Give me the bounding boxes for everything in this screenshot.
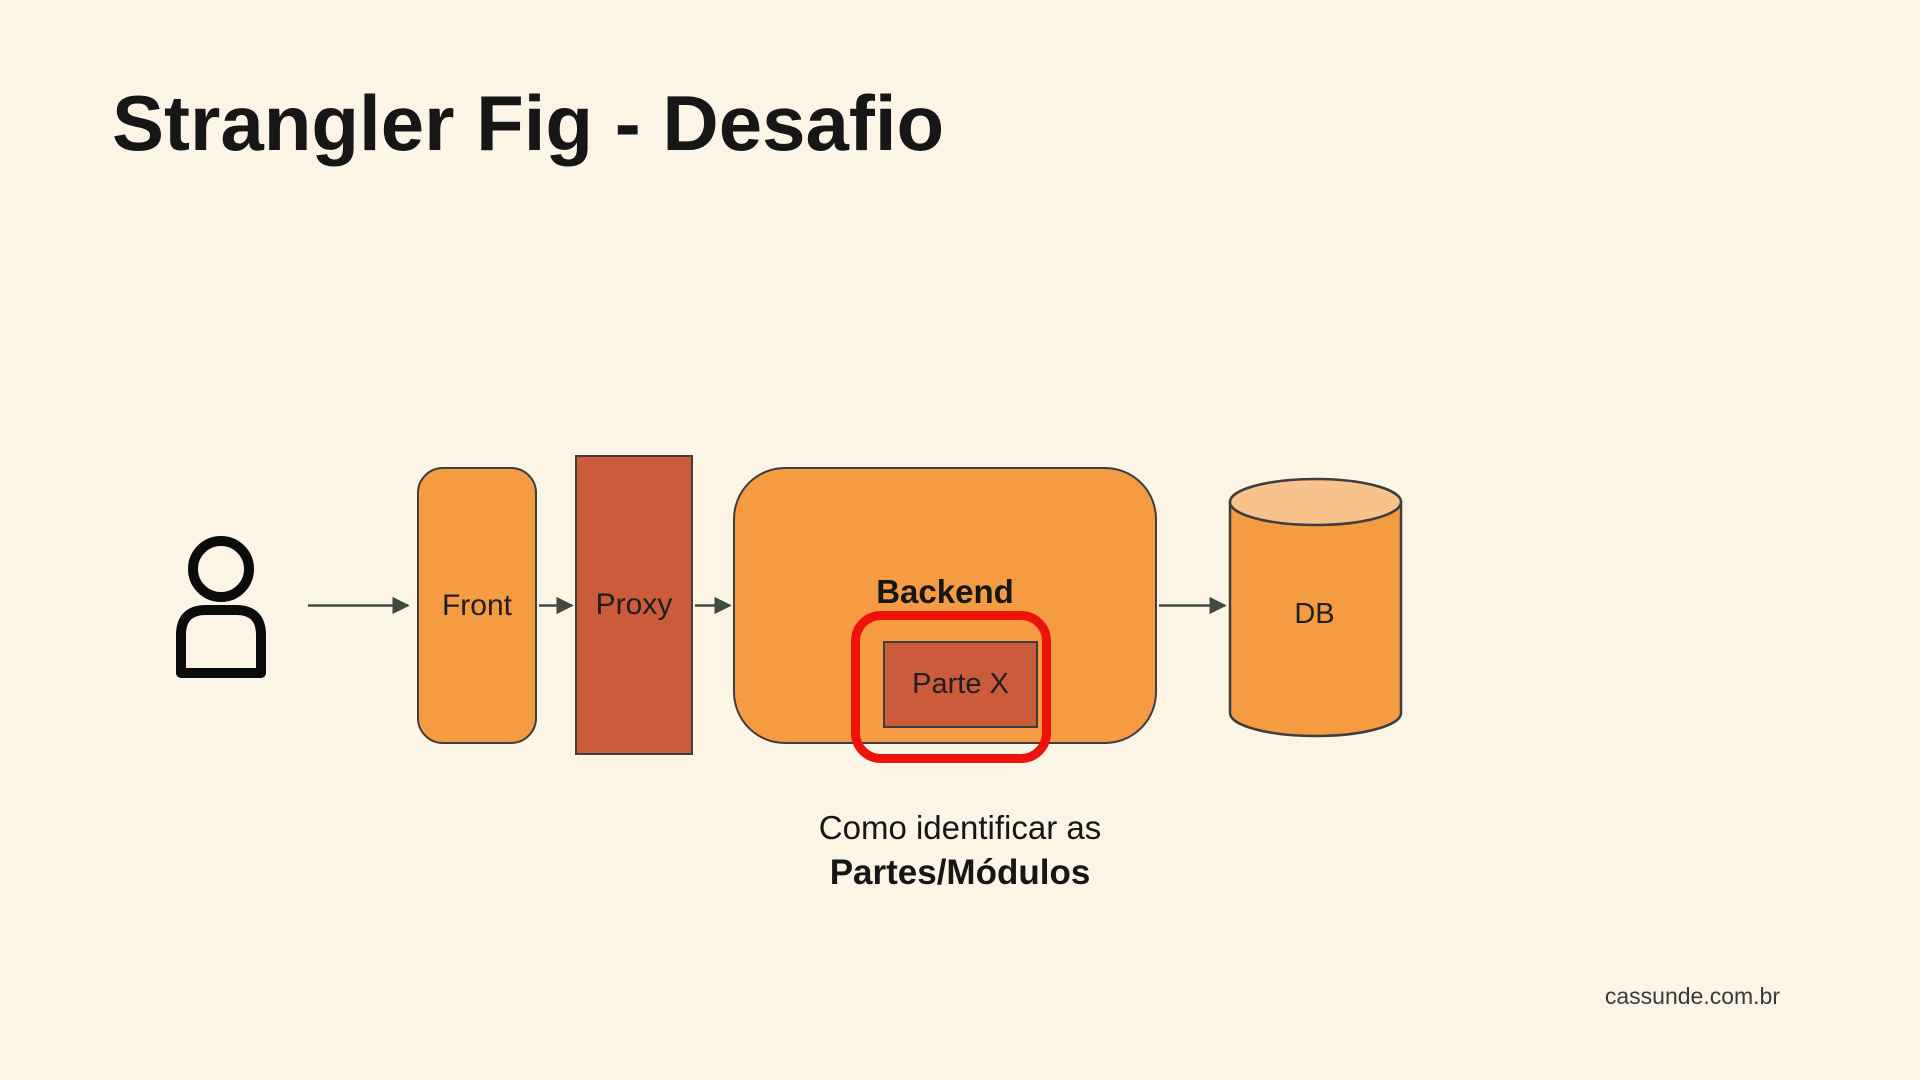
node-proxy: Proxy xyxy=(575,455,693,755)
caption-line2: Partes/Módulos xyxy=(660,852,1260,894)
footer-url: cassunde.com.br xyxy=(1480,983,1780,1010)
caption-line1: Como identificar as xyxy=(660,808,1260,848)
node-backend-label: Backend xyxy=(735,573,1155,611)
node-parte-x-label: Parte X xyxy=(912,668,1009,701)
node-parte-x: Parte X xyxy=(883,641,1038,728)
node-db-label: DB xyxy=(1228,598,1401,631)
node-proxy-label: Proxy xyxy=(596,588,673,622)
node-front: Front xyxy=(417,467,537,744)
page-title: Strangler Fig - Desafio xyxy=(112,78,944,169)
slide: Strangler Fig - Desafio Front Proxy Back… xyxy=(0,0,1920,1080)
caption: Como identificar as Partes/Módulos xyxy=(660,808,1260,894)
person-icon xyxy=(170,531,272,679)
node-front-label: Front xyxy=(442,589,512,623)
